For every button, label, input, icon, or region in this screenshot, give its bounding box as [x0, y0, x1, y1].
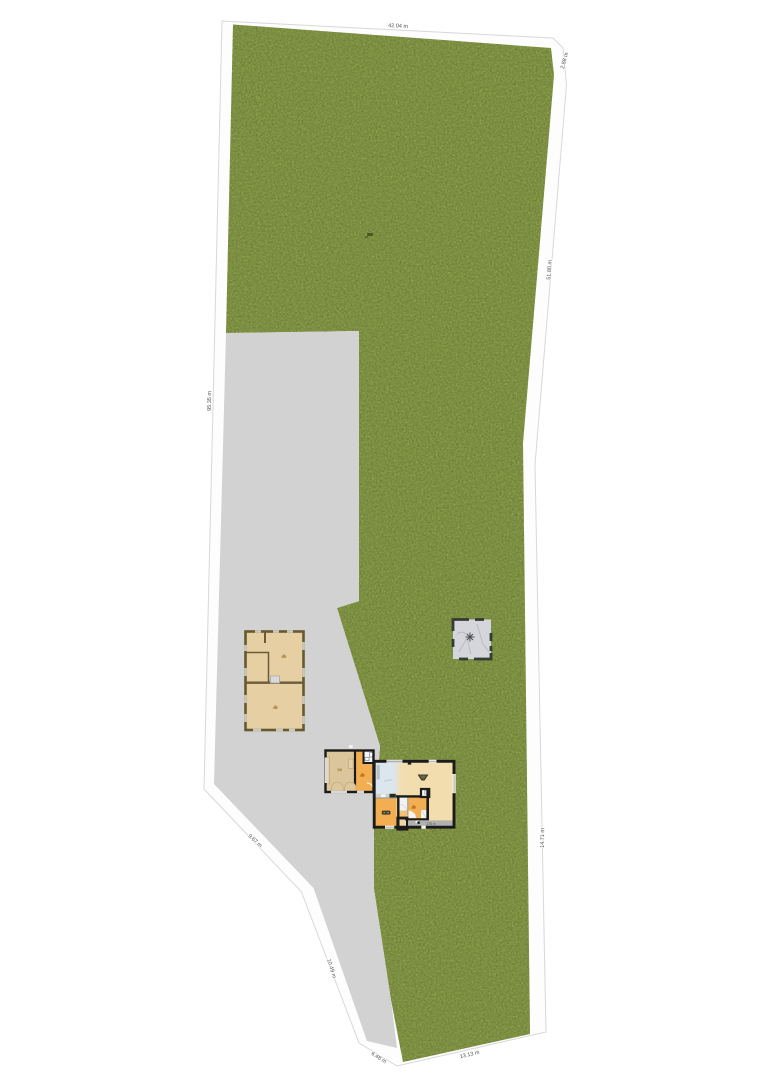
svg-text:14.71 m: 14.71 m	[540, 828, 546, 848]
svg-text:95.35 m: 95.35 m	[207, 391, 213, 411]
svg-text:42.04 m: 42.04 m	[388, 23, 409, 30]
svg-text:178 m: 178 m	[426, 822, 436, 826]
